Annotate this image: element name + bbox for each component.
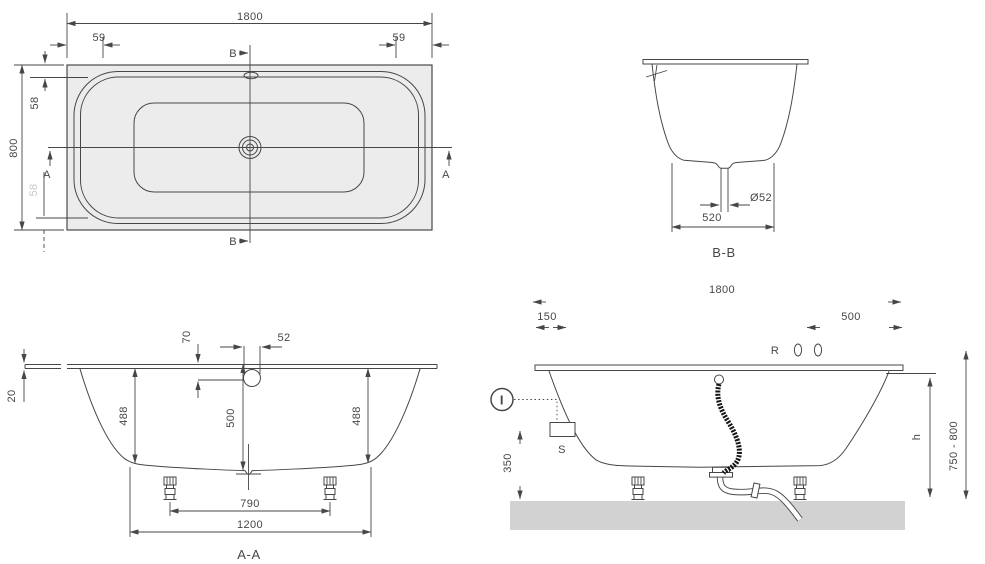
aa-dim-rim-thickness: 20 [6,389,18,402]
plan-dim-corner-right: 59 [392,32,405,44]
elevation-dim-overall-width: 1800 [709,284,735,296]
bb-dimensions: 520 Ø52 [672,163,774,232]
plan-dim-overall-width: 1800 [237,11,263,23]
elevation-dim-height-var: h [911,434,923,441]
remote-label: I [500,393,504,408]
tub-profile [652,64,797,168]
aa-dim-overflow-width: 52 [277,332,290,344]
elevation-dim-height-range: 750 - 800 [948,421,960,471]
aa-dimensions: 20 70 52 488 500 488 790 [6,330,371,537]
elevation-dim-left-offset: 150 [537,311,557,323]
tap-hole-icon [814,344,821,356]
leader-dotted-line [514,400,557,421]
aa-dim-depth-left: 488 [118,406,130,426]
control-box-label: S [558,444,566,456]
rim-profile [535,365,903,371]
section-marker-a-right: A [442,169,450,181]
foot-icon [164,477,177,500]
bb-dim-bottom-width: 520 [702,212,722,224]
section-marker-a-left: A [43,169,51,181]
bathtub-drawing: 1800 59 59 800 58 58 [0,0,985,564]
section-marker-b-top: B [229,48,237,60]
technical-drawing-canvas: 1800 59 59 800 58 58 [0,0,985,564]
rim-profile [25,365,437,369]
overflow-hose [718,384,740,473]
aa-dim-depth-center: 500 [225,408,237,428]
tap-holes-marker: R [771,344,822,357]
section-aa-title: A-A [237,547,260,562]
plan-dim-rim-inset-top: 58 [29,96,41,109]
plan-dim-corner-left: 59 [92,32,105,44]
rim-tick-mark [646,65,667,81]
aa-dim-feet-spacing: 790 [240,498,260,510]
aa-dim-bottom-width: 1200 [237,519,263,531]
plan-dim-overall-depth: 800 [8,138,20,158]
floor-slab [510,501,905,530]
section-bb-view: 520 Ø52 B-B [643,60,808,261]
foot-icon [324,477,337,500]
elevation-view: 1800 150 500 R [491,284,966,530]
pipe-union [751,483,760,498]
aa-dim-overflow-drop: 70 [181,330,193,343]
drain-flange [710,473,733,478]
section-bb-title: B-B [712,245,735,260]
elevation-dim-right-offset: 500 [841,311,861,323]
foot-icon [632,477,645,500]
bb-dim-drain-diameter: Ø52 [750,192,772,204]
foot-icon [794,477,807,500]
waste-drain-assembly [710,384,801,520]
plan-view: 1800 59 59 800 58 58 [8,11,452,252]
tap-holes-label: R [771,345,779,357]
elevation-dim-floor-clearance: 350 [502,453,514,473]
section-marker-b-bottom: B [229,236,237,248]
control-box [550,423,575,437]
rim-profile [643,60,808,65]
plan-dim-rim-inset-bottom: 58 [28,183,40,196]
aa-dim-depth-right: 488 [351,406,363,426]
tap-hole-icon [794,344,801,356]
overflow-hole [244,370,261,387]
overflow-hole [715,375,724,384]
remote-control-marker: I S [491,389,575,457]
elevation-dimensions-top: 150 500 [533,302,902,328]
section-aa-view: 20 70 52 488 500 488 790 [6,330,437,562]
